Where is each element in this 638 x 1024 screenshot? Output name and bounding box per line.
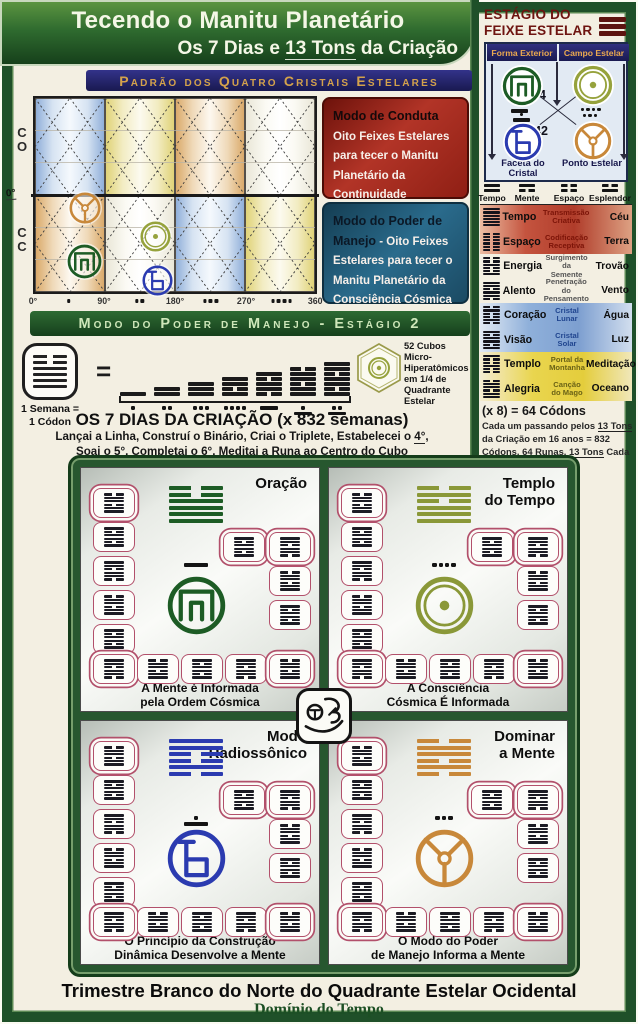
hexagram-icon <box>352 629 372 648</box>
stage-glyph-circledot <box>572 64 614 106</box>
meander-glyph-icon <box>501 65 543 107</box>
footer-trimester-title: Trimestre Branco do Norte do Quadrante E… <box>10 980 628 1002</box>
stage-tone-mark <box>583 114 597 117</box>
codon-card <box>429 907 471 937</box>
hexagram-icon <box>483 208 500 226</box>
codon-card <box>341 624 383 654</box>
center-arrow-line <box>556 62 558 100</box>
hexagram-icon <box>352 561 372 580</box>
axis-tick-label: 180° <box>166 296 184 306</box>
row-description: Canção do Mago <box>548 381 586 398</box>
chart-cell-yellow <box>245 195 315 292</box>
codon-card <box>341 590 383 620</box>
day-stack-4 <box>218 377 252 396</box>
row-name: Coração <box>504 309 548 321</box>
hexagram-icon <box>280 571 300 590</box>
hexagram-icon <box>280 659 300 678</box>
hexagram-icon <box>169 486 223 523</box>
row-name: Alegria <box>504 383 548 395</box>
codon-table-row: AlentoPenetração do PensamentoVento <box>480 279 632 304</box>
codon-card <box>269 654 311 684</box>
codon-card <box>385 907 427 937</box>
codon-card <box>181 654 223 684</box>
codon-card <box>93 775 135 805</box>
hexagram-icon <box>104 595 124 614</box>
row-description: Penetração do Pensamento <box>544 278 589 303</box>
panel-tone-mark <box>163 816 229 826</box>
day-stack-5 <box>252 372 286 396</box>
hexagram-icon <box>482 790 502 809</box>
subtitle-pre: Os 7 Dias e <box>177 38 285 59</box>
hexagram-icon <box>528 912 548 931</box>
hexagram-icon <box>148 912 168 931</box>
codon-card <box>341 556 383 586</box>
hexagram-icon <box>417 486 471 523</box>
codon-card <box>269 600 311 630</box>
hexagram-icon <box>104 746 124 765</box>
wave-pattern <box>105 195 175 292</box>
row-name: Visão <box>504 334 548 346</box>
axis-dot-group <box>135 299 144 303</box>
panel-modo-radiossonico: ModoRadiossônico O Princípio da Construç… <box>80 720 320 965</box>
row-description: Transmissão Criativa <box>543 209 589 226</box>
axis-tick-label: 90° <box>97 296 110 306</box>
conduct-mode-box: Modo de Conduta Oito Feixes Estelares pa… <box>322 97 469 199</box>
hexagram-icon <box>483 331 500 349</box>
codon-card <box>517 654 559 684</box>
stage-tone-mark <box>513 113 530 122</box>
codon-card <box>269 853 311 883</box>
row-description: Cristal Lunar <box>548 307 586 324</box>
column-header-label: Mente <box>515 193 540 203</box>
hexagram-icon <box>280 912 300 931</box>
column-header-label: Espaço <box>554 193 585 203</box>
hexagram-icon <box>192 659 212 678</box>
hexagram-icon <box>280 537 300 556</box>
chart-cell-tan <box>175 98 245 195</box>
codon-table-row: TemploPortal da MontanhaMeditação <box>480 352 632 377</box>
stage-glyph-meander <box>501 65 543 107</box>
codon-card <box>341 877 383 907</box>
maya-numeral <box>184 816 208 826</box>
hexagram-icon <box>33 355 67 389</box>
stage-glyph-trispoke <box>573 121 613 161</box>
codon-card <box>93 522 135 552</box>
hexagram-icon <box>483 306 500 324</box>
codon-card <box>341 488 383 518</box>
axis-dot-group <box>271 299 292 303</box>
chart-row-label-co: CO <box>12 126 32 153</box>
panel-oracao: Oração A Mente é Informadapela Ordem Cós… <box>80 467 320 712</box>
trispoke-glyph-icon <box>573 121 613 161</box>
hexagram-icon <box>417 739 471 776</box>
stage2-bar-title: Modo do Poder de Manejo - Estágio 2 <box>30 311 470 336</box>
codon-card <box>517 785 559 815</box>
chart-cell-tan <box>35 195 105 292</box>
hexagram-icon <box>440 659 460 678</box>
trispoke-glyph-icon <box>413 827 476 890</box>
hexagram-icon <box>484 912 504 931</box>
wave-pattern <box>175 98 245 195</box>
codon-table-row: CoraçãoCristal LunarÁgua <box>480 303 632 328</box>
hexagram-icon <box>104 561 124 580</box>
hexagram-icon <box>234 790 254 809</box>
chart-cell-yellow <box>105 98 175 195</box>
codon-card <box>225 907 267 937</box>
hexagram-icon <box>104 659 124 678</box>
codon-card <box>269 566 311 596</box>
right-arrow-line <box>623 64 625 154</box>
wave-pattern <box>175 195 245 292</box>
hexagram-icon <box>483 282 500 300</box>
hexagram-icon <box>352 912 372 931</box>
panel-seal-glyph <box>413 827 476 890</box>
codon-card <box>93 809 135 839</box>
row-description: Portal da Montanha <box>548 356 586 373</box>
codon-card <box>93 877 135 907</box>
center-maya-seal-icon <box>296 688 352 744</box>
hexagram-icon <box>236 659 256 678</box>
codon-card <box>181 907 223 937</box>
equals-sign: = <box>96 356 111 387</box>
hexagram-icon <box>440 912 460 931</box>
row-element: Meditação <box>586 359 632 370</box>
codon-table-row: TempoTransmissão CriativaCéu <box>480 205 632 230</box>
codon-table-row: EnergiaSurgimento da SementeTrovão <box>480 254 632 279</box>
codon-card <box>93 654 135 684</box>
hexagram-icon <box>483 380 500 398</box>
codon-table-header: TempoMenteEspaçoEsplendor <box>480 184 632 205</box>
maya-numeral <box>432 563 456 567</box>
codon-card <box>93 488 135 518</box>
day-stack-2 <box>150 387 184 396</box>
stage-panel-title-line2: FEIXE ESTELAR <box>484 23 614 38</box>
wave-pattern <box>35 98 105 195</box>
hexagram-icon <box>104 527 124 546</box>
header-cell: Tempo <box>480 184 504 203</box>
panel-tone-mark <box>411 816 477 820</box>
day-stack-6 <box>286 367 320 396</box>
day-stacks-row <box>116 342 354 396</box>
hexagram-icon <box>528 571 548 590</box>
wave-pattern <box>245 195 315 292</box>
hexagram-icon <box>104 882 124 901</box>
codon-table-row: EspaçoCodificação ReceptivaTerra <box>480 230 632 255</box>
panel-caption: A Mente é Informadapela Ordem Cósmica <box>81 681 319 710</box>
digram-icon <box>519 184 535 192</box>
grid-header-campo-estelar: Campo Estelar <box>559 44 629 61</box>
hexagram-icon <box>192 912 212 931</box>
codon-card <box>341 654 383 684</box>
hexagram-icon <box>483 257 500 275</box>
hexagram-icon <box>528 790 548 809</box>
hexagram-icon <box>280 858 300 877</box>
subtitle-underlined: 13 Tons <box>285 38 355 60</box>
row-element: Luz <box>586 334 632 345</box>
maya-numeral <box>435 816 452 820</box>
wave-pattern <box>245 98 315 195</box>
header-cell: Espaço <box>550 184 588 203</box>
panel-tone-mark <box>163 563 229 567</box>
circledot-glyph-icon <box>572 64 614 106</box>
hexagram-icon <box>104 780 124 799</box>
poster-page: Tecendo o Manitu Planetário Os 7 Dias e … <box>0 0 638 1024</box>
hexagon-cube-icon <box>356 343 402 398</box>
panel-seal-glyph <box>413 574 476 637</box>
wave-pattern <box>35 195 105 292</box>
codon-footnote-line2: da Criação em 16 anos = 832 <box>482 433 634 444</box>
codon-card <box>269 785 311 815</box>
micro-hyperatomic-cubes-label: 52 Cubos Micro-Hiperatômicos em 1/4 de Q… <box>404 341 474 407</box>
axis-dot-group <box>203 299 218 303</box>
row-name: Tempo <box>502 211 543 223</box>
hexagram-icon <box>482 537 502 556</box>
codon-card <box>93 624 135 654</box>
row-element: Água <box>586 310 632 321</box>
days-bracket <box>119 396 351 403</box>
meander-glyph-icon <box>165 574 228 637</box>
left-arrow-head <box>488 154 496 160</box>
hexagram-icon <box>528 537 548 556</box>
codon-card <box>269 907 311 937</box>
codon-card <box>93 556 135 586</box>
hexagram-icon <box>104 493 124 512</box>
seven-days-heading: OS 7 DIAS DA CRIAÇÃO (x 832 semanas) <box>16 410 468 430</box>
title-band: Tecendo o Manitu Planetário Os 7 Dias e … <box>2 2 474 64</box>
hexagram-icon <box>148 659 168 678</box>
hexagram-icon <box>352 595 372 614</box>
chart-zero-degree-label: 0° <box>6 188 16 201</box>
row-element: Céu <box>589 212 632 223</box>
center-arrow-head <box>553 100 561 106</box>
hexagram-icon <box>484 659 504 678</box>
manejo-separator: - <box>376 236 386 248</box>
chart-cell-blue <box>35 98 105 195</box>
codon-card <box>137 654 179 684</box>
codon-card <box>341 809 383 839</box>
codon-card <box>223 532 265 562</box>
hexagram-icon <box>236 912 256 931</box>
codon-footnote-line1: Cada um passando pelos 13 Tons <box>482 420 634 431</box>
row-name: Alento <box>503 285 544 297</box>
panel-caption: O Princípio da ConstruçãoDinâmica Desenv… <box>81 934 319 963</box>
hexagram-icon <box>352 659 372 678</box>
codon-card <box>517 600 559 630</box>
codon-table-row: AlegriaCanção do MagoOceano <box>480 377 632 402</box>
axis-dot-group <box>67 299 71 303</box>
codon-card <box>473 907 515 937</box>
hexagram-icon <box>528 605 548 624</box>
codon-card <box>517 907 559 937</box>
page-title: Tecendo o Manitu Planetário <box>2 7 474 35</box>
codon-card <box>471 532 513 562</box>
hexagram-icon <box>528 824 548 843</box>
subtitle-post: da Criação <box>356 38 458 59</box>
maya-numeral <box>583 114 597 117</box>
trigram-icon <box>599 17 626 36</box>
codon-card <box>471 785 513 815</box>
chart-zero-line <box>31 194 319 197</box>
footer-time-domain: Domínio do Tempo <box>10 1001 628 1019</box>
wave-pattern <box>105 98 175 195</box>
codon-card <box>93 907 135 937</box>
stage-tone-mark <box>581 108 601 111</box>
panel-caption: A ConsciênciaCósmica É Informada <box>329 681 567 710</box>
chart-row-label-cc: CC <box>12 226 32 253</box>
axis-tick-label: 270° <box>237 296 255 306</box>
row-name: Templo <box>504 358 548 370</box>
codon-card <box>517 532 559 562</box>
codon-card <box>517 566 559 596</box>
grid-header-forma-exterior: Forma Exterior <box>487 44 557 61</box>
hexagram-icon <box>528 659 548 678</box>
hexagram-icon <box>352 527 372 546</box>
stage-glyph-bglyph <box>503 122 543 162</box>
day-stack-1 <box>116 392 150 396</box>
hexagram-icon <box>104 848 124 867</box>
panel-caption: O Modo do Poderde Manejo Informa a Mente <box>329 934 567 963</box>
codon-card <box>517 853 559 883</box>
hexagram-icon <box>483 233 500 251</box>
hexagram-icon <box>483 355 500 373</box>
hexagram-icon <box>352 493 372 512</box>
creation-instructions-line1: Lançai a Linha, Construí o Binário, Cria… <box>12 430 472 443</box>
codon-card <box>93 741 135 771</box>
chart-cell-blue <box>175 195 245 292</box>
codon-table-row: VisãoCristal SolarLuz <box>480 328 632 353</box>
column-header-label: Esplendor <box>589 193 631 203</box>
codon-card <box>341 907 383 937</box>
panel-templo-do-tempo: Templodo Tempo A ConsciênciaCósmica É In… <box>328 467 568 712</box>
codon-card <box>137 907 179 937</box>
hexagram-icon <box>280 824 300 843</box>
left-arrow-line <box>491 64 493 154</box>
hexagram-icon <box>104 912 124 931</box>
digram-icon <box>561 184 577 192</box>
codon-card <box>225 654 267 684</box>
page-subtitle: Os 7 Dias e 13 Tons da Criação <box>177 38 458 60</box>
panel-seal-glyph <box>165 574 228 637</box>
hexagram-icon <box>280 605 300 624</box>
row-element: Terra <box>588 236 632 247</box>
digram-icon <box>602 184 618 192</box>
codon-card <box>341 843 383 873</box>
row-name: Espaço <box>503 236 545 248</box>
star-beam-stage-grid: Forma Exterior Campo Estelar 34 26 42 18… <box>484 42 628 182</box>
codon-card <box>93 843 135 873</box>
axis-tick-label: 0° <box>29 296 37 306</box>
hexagram-icon <box>352 848 372 867</box>
day-stack-7 <box>320 362 354 396</box>
codon-card <box>429 654 471 684</box>
codon-card <box>93 590 135 620</box>
header-cell: Mente <box>504 184 550 203</box>
chart-x-axis: 0°90°180°270°360° <box>33 296 317 312</box>
row-name: Energia <box>503 260 545 272</box>
hexagram-icon <box>234 537 254 556</box>
codon-card <box>269 532 311 562</box>
codon-card <box>517 819 559 849</box>
hexagram-icon <box>280 790 300 809</box>
row-element: Trovão <box>588 261 632 272</box>
hexagram-icon <box>104 814 124 833</box>
panel-tone-mark <box>411 563 477 567</box>
codon-card <box>341 741 383 771</box>
codon-card <box>341 522 383 552</box>
hexagram-icon <box>396 912 416 931</box>
codon-card <box>385 654 427 684</box>
conduct-mode-title: Modo de Conduta <box>333 109 439 123</box>
pattern-bar-title: Padrão dos Quatro Cristais Estelares <box>86 70 472 91</box>
maya-numeral <box>513 113 530 122</box>
codon-week-symbol <box>22 343 78 400</box>
codon-elements-table: TempoMenteEspaçoEsplendorTempoTransmissã… <box>480 184 632 401</box>
codon-card <box>223 785 265 815</box>
hexagram-icon <box>169 739 223 776</box>
row-element: Vento <box>589 285 632 296</box>
maya-numeral <box>581 108 601 111</box>
hexagram-icon <box>396 659 416 678</box>
maya-numeral <box>184 563 208 567</box>
manejo-mode-box: Modo do Poder de Manejo - Oito Feixes Es… <box>322 202 469 304</box>
bglyph-glyph-icon <box>503 122 543 162</box>
stage-panel-title-line1: ESTÁGIO DO <box>484 7 614 22</box>
column-header-label: Tempo <box>478 193 506 203</box>
row-description: Surgimento da Semente <box>545 254 587 279</box>
digram-icon <box>484 184 500 192</box>
row-element: Oceano <box>586 383 632 394</box>
panel-seal-glyph <box>165 827 228 890</box>
bglyph-glyph-icon <box>165 827 228 890</box>
circledot-glyph-icon <box>413 574 476 637</box>
hexagram-icon <box>352 746 372 765</box>
header-cell: Esplendor <box>588 184 632 203</box>
hexagram-icon <box>104 629 124 648</box>
chart-cell-plain <box>245 98 315 195</box>
codon-card <box>473 654 515 684</box>
day-stack-3 <box>184 382 218 396</box>
hexagram-icon <box>352 814 372 833</box>
panel-dominar-a-mente: Dominara Mente O Modo do Poderde Manejo … <box>328 720 568 965</box>
row-description: Codificação Receptiva <box>545 234 588 251</box>
codon-count-label: (x 8) = 64 Códons <box>482 404 586 418</box>
right-arrow-head <box>620 154 628 160</box>
hexagram-icon <box>528 858 548 877</box>
hexagram-icon <box>352 882 372 901</box>
row-description: Cristal Solar <box>548 332 586 349</box>
codon-card <box>341 775 383 805</box>
codon-card <box>269 819 311 849</box>
chart-cell-plain <box>105 195 175 292</box>
hexagram-icon <box>352 780 372 799</box>
